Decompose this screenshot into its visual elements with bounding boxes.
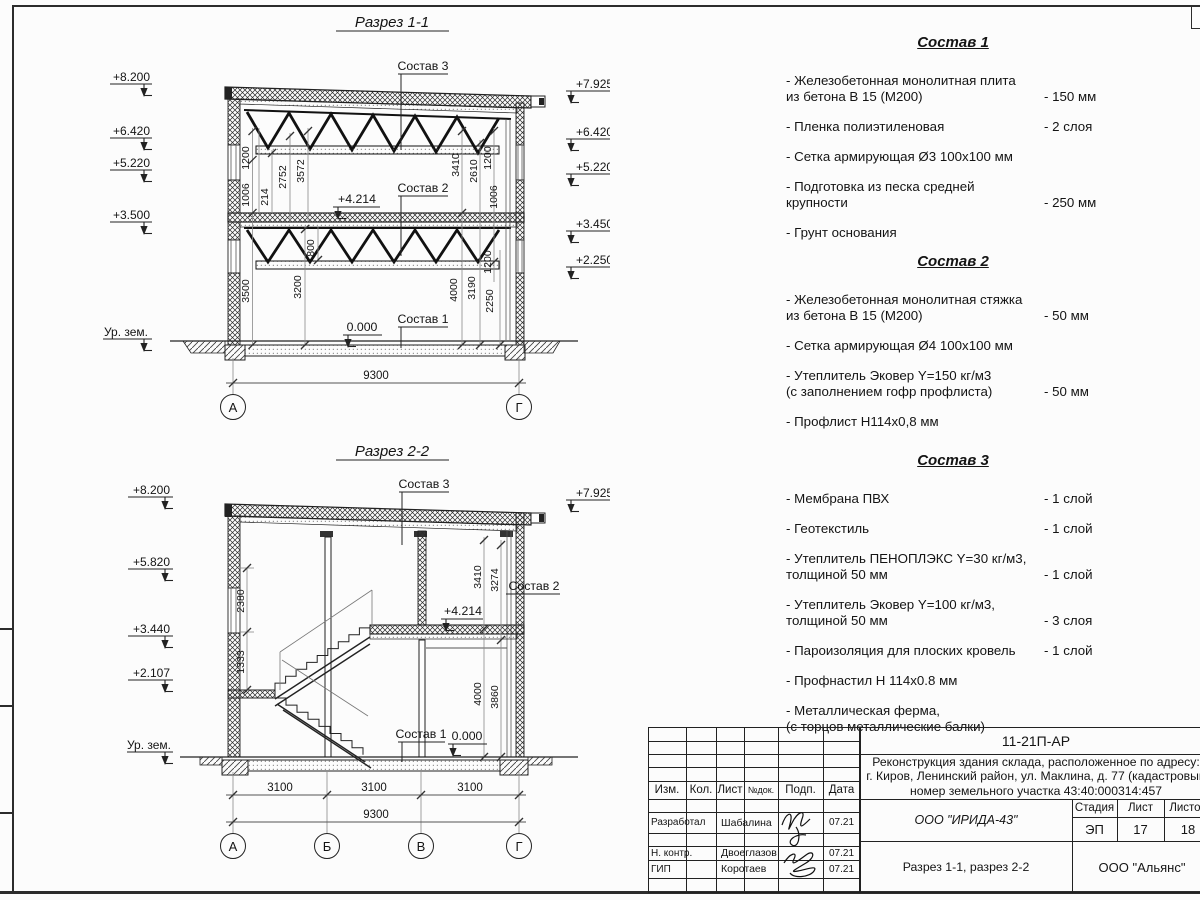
ground-slab [180,757,578,775]
svg-text:+6.420: +6.420 [576,125,610,139]
svg-text:+3.440: +3.440 [133,622,170,636]
fold-tick-2 [0,705,13,707]
tb-name-shabalina: Шабалина [718,812,778,833]
title-block: Изм. Кол. Лист №док. Подп. Дата Разработ… [648,727,1200,893]
tb-sheet-value: 17 [1117,817,1164,841]
signature-icon [776,805,826,885]
tb-role-nkontr: Н. контр. [648,846,716,860]
tb-date-1: 07.21 [823,812,860,833]
svg-text:0.000: 0.000 [452,729,483,743]
svg-text:Г: Г [515,400,522,415]
svg-text:800: 800 [305,239,317,257]
dim-ticks [243,536,505,761]
list-item: - Утеплитель ПЕНОПЛЭКС Y=30 кг/м3, толщи… [786,551,1120,583]
svg-text:Б: Б [323,839,332,854]
list-item: - Сетка армирующая Ø4 100х100 мм [786,338,1120,354]
elevation-marks-left: +8.200 +5.820 +3.440 +2.107 Ур. зем. [127,483,173,764]
interior-column-b [325,537,331,757]
list-item: - Пленка полиэтиленовая- 2 слоя [786,119,1120,135]
svg-text:Ур. зем.: Ур. зем. [127,738,171,752]
svg-text:1006: 1006 [488,185,500,209]
list-item: - Подготовка из песка средней крупности-… [786,179,1120,211]
svg-text:Состав 3: Состав 3 [398,59,449,73]
svg-text:Состав 3: Состав 3 [399,477,450,491]
elevation-marks-left: +8.200 +6.420 +5.220 +3.500 Ур. зем. [103,70,152,351]
tb-firm: ООО "Альянс" [1072,841,1200,893]
svg-text:+5.820: +5.820 [133,555,170,569]
tb-name-dvoeglazov: Двоеглазов [718,846,778,860]
svg-text:2752: 2752 [277,165,289,189]
svg-text:4000: 4000 [472,682,484,706]
svg-text:А: А [229,400,238,415]
svg-text:+3.450: +3.450 [576,217,610,231]
fold-tick-1 [0,628,13,630]
svg-text:+6.420: +6.420 [113,124,150,138]
tb-header-list: Лист [716,781,744,799]
sostav-3-title: Состав 3 [786,452,1120,469]
svg-text:9300: 9300 [363,809,389,821]
svg-text:Состав 1: Состав 1 [396,727,447,741]
drawing-sheet: { "s1": { "title": "Разрез 1-1", "elev_l… [0,0,1200,900]
tb-header-izm: Изм. [648,781,686,799]
roof-slab [225,504,545,537]
svg-text:2380: 2380 [235,589,247,613]
section-2-2-drawing: Разрез 2-2 [90,428,610,880]
fold-tick-3 [0,812,13,814]
svg-text:0.000: 0.000 [347,320,378,334]
svg-text:9300: 9300 [363,370,389,382]
bottom-dimension: 3100 3100 3100 9300 [226,772,526,833]
svg-text:3410: 3410 [450,153,462,177]
svg-text:+5.220: +5.220 [576,160,610,174]
svg-text:4000: 4000 [448,278,460,302]
sostav-2-list: Состав 2 - Железобетонная монолитная стя… [786,253,1120,444]
tb-role-gip: ГИП [648,860,716,878]
svg-text:+3.500: +3.500 [113,208,150,222]
tb-date-2: 07.21 [823,846,860,860]
svg-text:3410: 3410 [472,565,484,589]
svg-text:Разрез 2-2: Разрез 2-2 [355,443,430,460]
elevation-marks-right: +7.925 +6.420 +5.220 +3.450 +2.250 [566,77,610,279]
floor-truss [244,228,511,269]
svg-text:214: 214 [259,188,271,206]
dim-ticks [249,127,505,349]
tb-name-korotaev: Коротаев [718,860,778,878]
sostav-1-list: Состав 1 - Железобетонная монолитная пли… [786,34,1120,255]
elevation-marks-right: +7.925 [566,486,610,512]
frame-top [13,5,1200,7]
svg-text:3860: 3860 [489,685,501,709]
tb-sheets-value: 18 [1164,817,1200,841]
svg-text:В: В [417,839,426,854]
svg-text:Ур. зем.: Ур. зем. [104,325,148,339]
svg-text:1200: 1200 [482,250,494,274]
svg-text:Разрез 1-1: Разрез 1-1 [355,14,429,31]
tb-header-ndok: №док. [744,781,778,799]
sostav-2-title: Состав 2 [786,253,1120,270]
stair [228,628,371,768]
svg-text:+8.200: +8.200 [113,70,150,84]
dim-texts: 1200 1006 214 2752 3572 3200 3500 800 34… [240,146,500,313]
axis-marks: А Б В Г [221,834,532,859]
svg-text:+2.250: +2.250 [576,253,610,267]
list-item: - Пароизоляция для плоских кровель- 1 сл… [786,643,1120,659]
svg-text:+2.107: +2.107 [133,666,170,680]
svg-text:А: А [229,839,238,854]
sostav-1-title: Состав 1 [786,34,1120,51]
list-item: - Мембрана ПВХ- 1 слой [786,491,1120,507]
svg-text:3190: 3190 [466,276,478,300]
bottom-dimension: 9300 [226,358,526,395]
svg-text:+8.200: +8.200 [133,483,170,497]
tb-header-data: Дата [823,781,860,799]
tb-sheets-label: Листов [1164,799,1200,817]
list-item: - Грунт основания [786,225,1120,241]
tb-sheet-label: Лист [1117,799,1164,817]
svg-text:1200: 1200 [240,146,252,170]
tb-role-razrabotal: Разработал [648,812,716,833]
frame-left [12,5,14,891]
svg-text:3100: 3100 [267,782,293,794]
svg-text:1333: 1333 [235,650,247,674]
svg-text:3100: 3100 [361,782,387,794]
list-item: - Железобетонная монолитная плита из бет… [786,73,1120,105]
svg-text:3274: 3274 [489,568,501,592]
svg-text:Г: Г [515,839,522,854]
svg-text:+4.214: +4.214 [338,192,376,206]
tb-header-kol: Кол. [686,781,716,799]
svg-text:+7.925: +7.925 [576,77,610,91]
section-1-1-drawing: Разрез 1-1 [90,8,610,428]
tb-project-description: Реконструкция здания склада, расположенн… [860,754,1200,799]
interior-wall-v [418,531,426,757]
svg-text:3500: 3500 [240,279,252,303]
svg-text:1200: 1200 [482,146,494,170]
tb-stage-value: ЭП [1072,817,1117,841]
tb-doc-number: 11-21П-АР [860,727,1200,754]
svg-text:+5.220: +5.220 [113,156,150,170]
svg-text:1006: 1006 [240,183,252,207]
left-wall [228,99,240,345]
svg-text:3572: 3572 [295,159,307,183]
list-item: - Профлист Н114х0,8 мм [786,414,1120,430]
svg-text:+4.214: +4.214 [444,604,482,618]
dim-lines [240,537,501,757]
sostav-3-list: Состав 3 - Мембрана ПВХ- 1 слой - Геотек… [786,452,1120,749]
left-wall [228,516,240,757]
svg-text:3100: 3100 [457,782,483,794]
tb-drawing-title: Разрез 1-1, разрез 2-2 [860,841,1072,893]
tb-date-3: 07.21 [823,860,860,878]
list-item: - Профнастил Н 114х0.8 мм [786,673,1120,689]
axis-marks: А Г [221,395,532,420]
tb-org: ООО "ИРИДА-43" [860,799,1072,841]
svg-text:Состав 2: Состав 2 [398,181,449,195]
svg-text:+7.925: +7.925 [576,486,610,500]
list-item: - Сетка армирующая Ø3 100х100 мм [786,149,1120,165]
list-item: - Утеплитель Эковер Y=150 кг/м3 (с запол… [786,368,1120,400]
section1-title: Разрез 1-1 [336,14,449,31]
svg-text:Состав 2: Состав 2 [509,579,560,593]
roof-truss [244,110,511,154]
roof-slab [225,87,545,113]
svg-text:Состав 1: Состав 1 [398,312,449,326]
list-item: - Утеплитель Эковер Y=100 кг/м3, толщино… [786,597,1120,629]
svg-text:2610: 2610 [468,159,480,183]
section2-title: Разрез 2-2 [336,443,449,460]
svg-text:2250: 2250 [484,289,496,313]
tb-stage-label: Стадия [1072,799,1117,817]
corner-box [1191,7,1200,29]
tb-header-podp: Подп. [778,781,823,799]
list-item: - Геотекстиль- 1 слой [786,521,1120,537]
svg-text:3200: 3200 [292,275,304,299]
list-item: - Железобетонная монолитная стяжка из бе… [786,292,1120,324]
